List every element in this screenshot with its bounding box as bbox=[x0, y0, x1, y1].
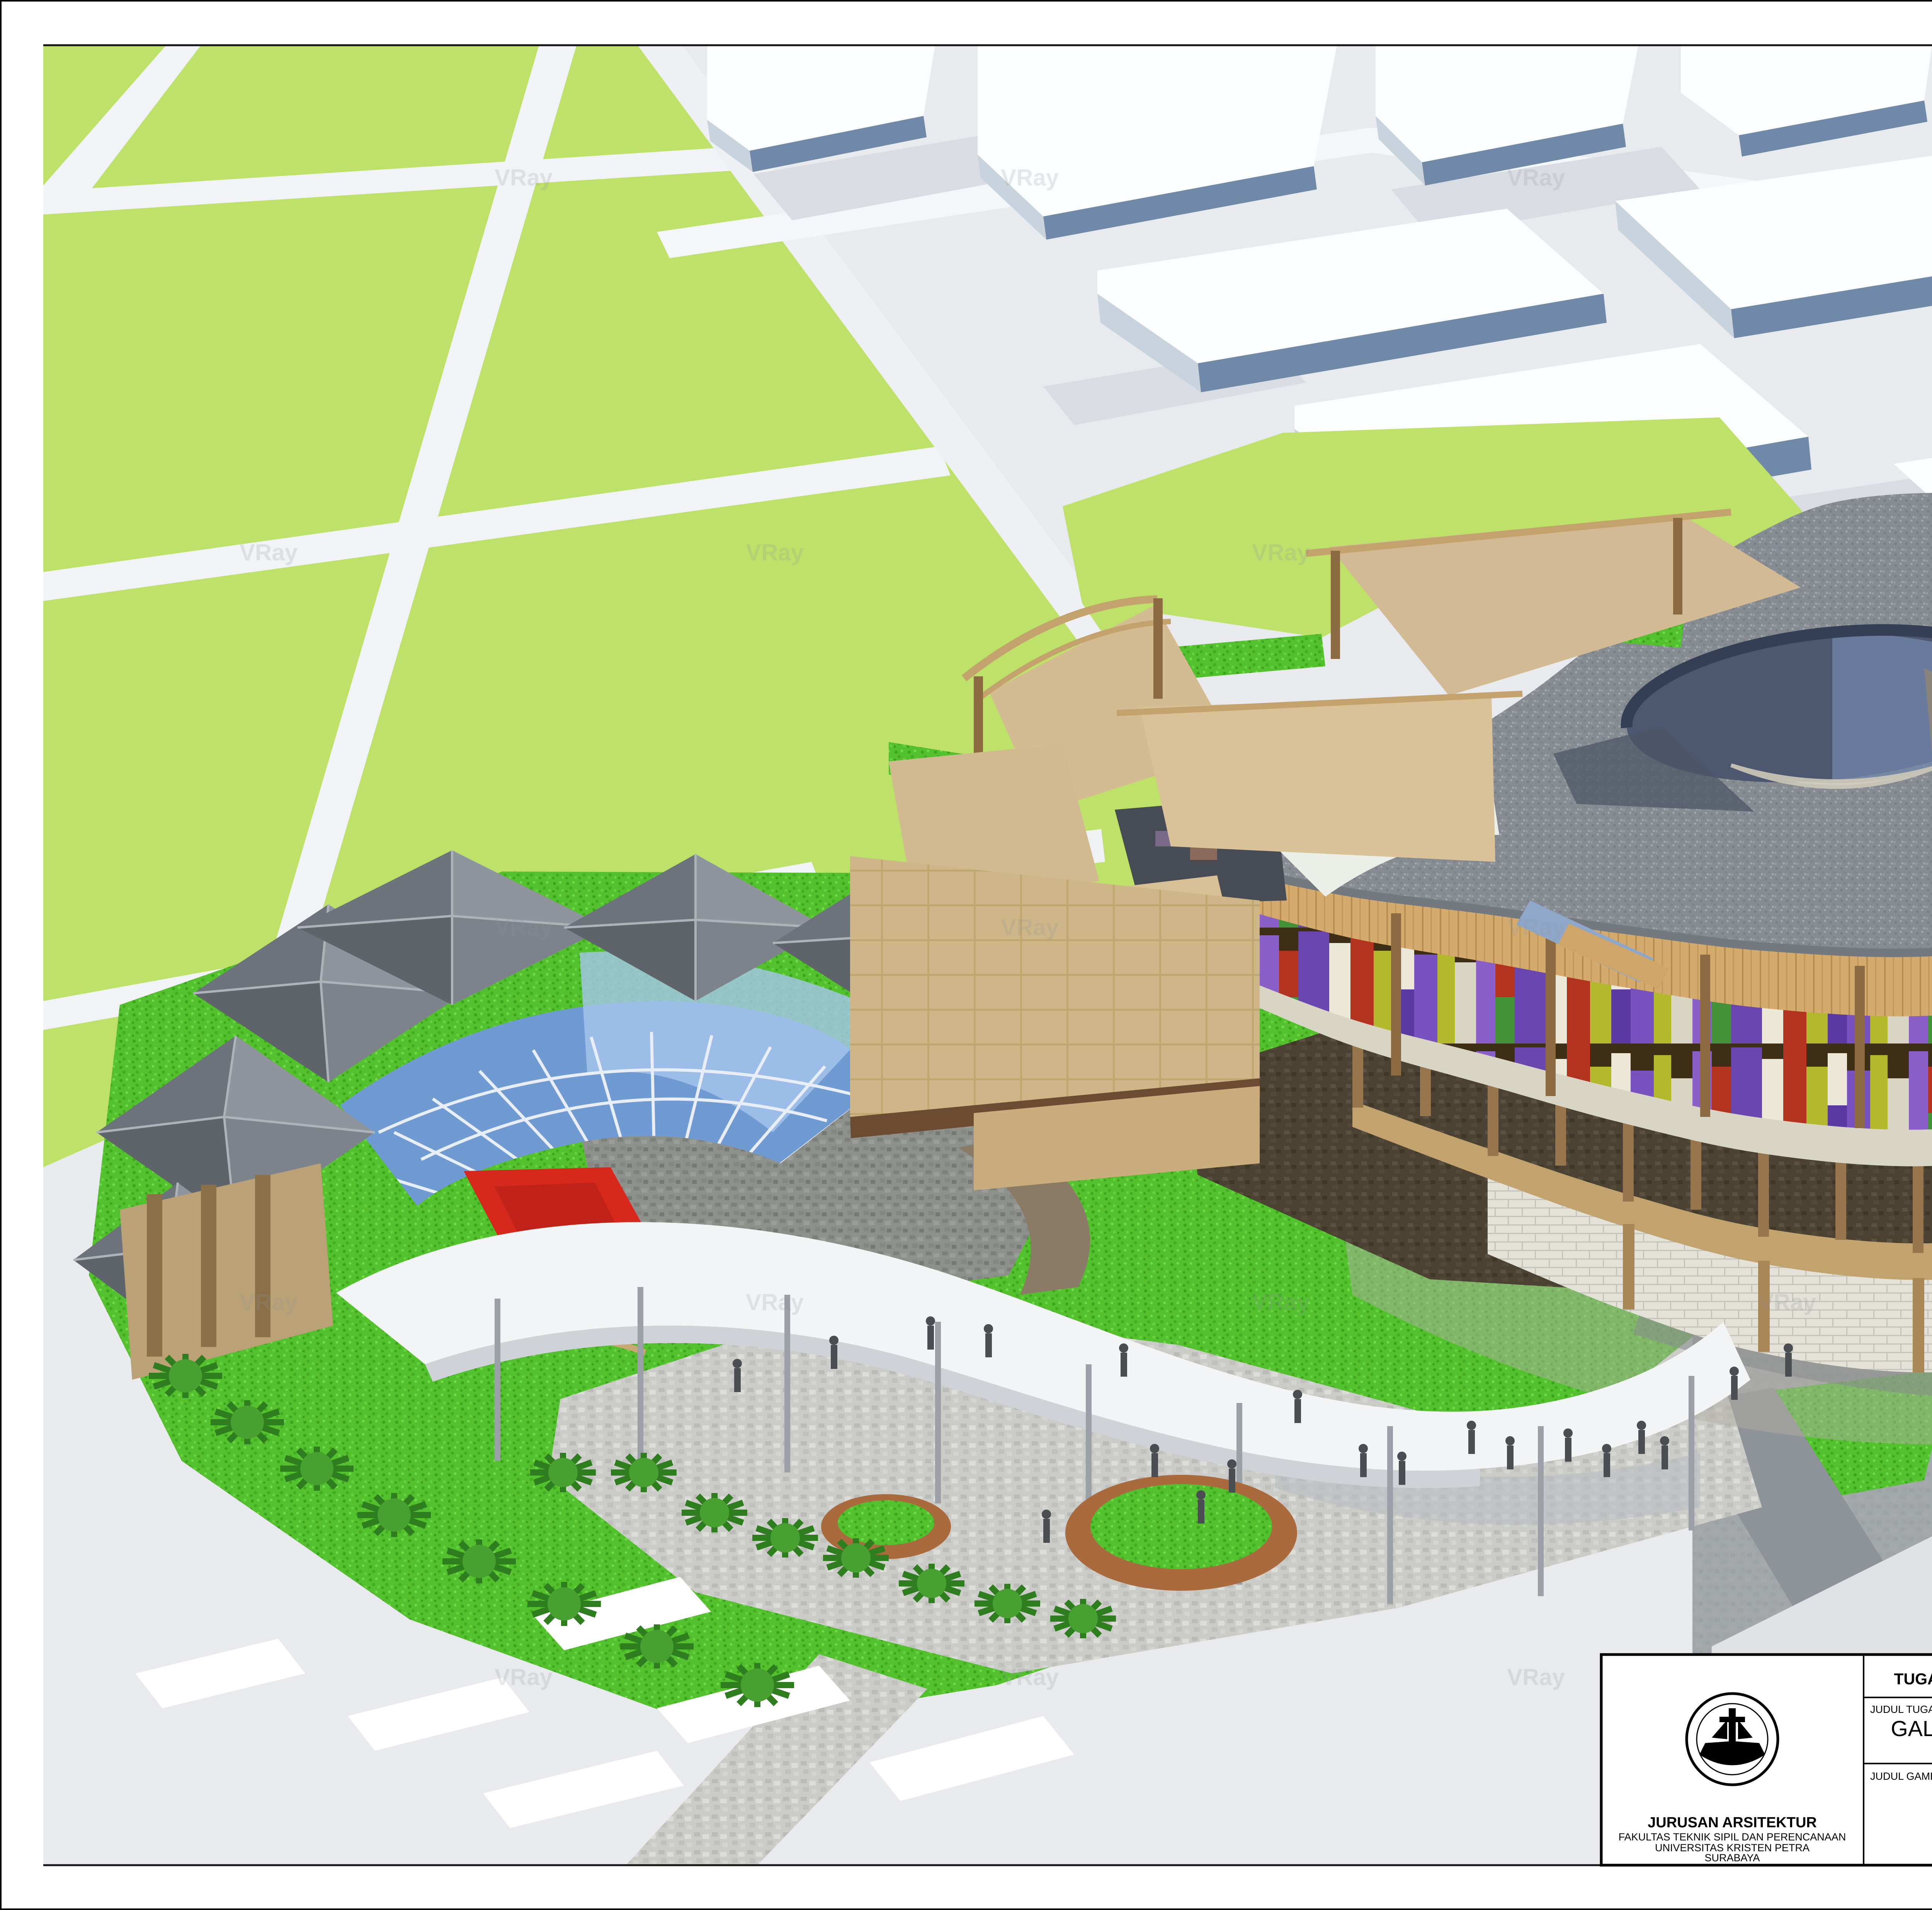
svg-text:VRay: VRay bbox=[1507, 914, 1565, 940]
svg-text:GALERI SENI KERAJINAN DAUR ULA: GALERI SENI KERAJINAN DAUR ULANG bbox=[1891, 1716, 1932, 1741]
svg-text:VRay: VRay bbox=[1758, 1289, 1816, 1315]
svg-text:VRay: VRay bbox=[1507, 1664, 1565, 1690]
svg-text:VRay: VRay bbox=[1001, 914, 1059, 940]
svg-text:TUGAS AKHIR AR. 800 - SEMESTER: TUGAS AKHIR AR. 800 - SEMESTER GENAP 201… bbox=[1894, 1670, 1932, 1688]
svg-text:VRay: VRay bbox=[1507, 165, 1565, 191]
svg-text:VRay: VRay bbox=[495, 165, 553, 191]
svg-text:VRay: VRay bbox=[1001, 1664, 1059, 1690]
svg-text:SURABAYA: SURABAYA bbox=[1704, 1852, 1760, 1864]
svg-text:VRay: VRay bbox=[746, 540, 804, 565]
svg-text:JUDUL GAMBAR: JUDUL GAMBAR bbox=[1870, 1770, 1932, 1782]
svg-text:VRay: VRay bbox=[1758, 540, 1816, 565]
svg-text:FAKULTAS TEKNIK SIPIL DAN PERE: FAKULTAS TEKNIK SIPIL DAN PERENCANAAN bbox=[1619, 1831, 1846, 1843]
svg-text:JUDUL TUGAS: JUDUL TUGAS bbox=[1870, 1704, 1932, 1715]
svg-text:JURUSAN ARSITEKTUR: JURUSAN ARSITEKTUR bbox=[1648, 1815, 1817, 1831]
svg-text:VRay: VRay bbox=[240, 540, 298, 565]
svg-text:VRay: VRay bbox=[1252, 1289, 1310, 1315]
svg-text:VRay: VRay bbox=[495, 1664, 553, 1690]
svg-text:VRay: VRay bbox=[495, 914, 553, 940]
svg-text:VRay: VRay bbox=[746, 1289, 804, 1315]
svg-text:VRay: VRay bbox=[240, 1289, 298, 1315]
svg-text:VRay: VRay bbox=[1252, 540, 1310, 565]
svg-text:VRay: VRay bbox=[1001, 165, 1059, 191]
